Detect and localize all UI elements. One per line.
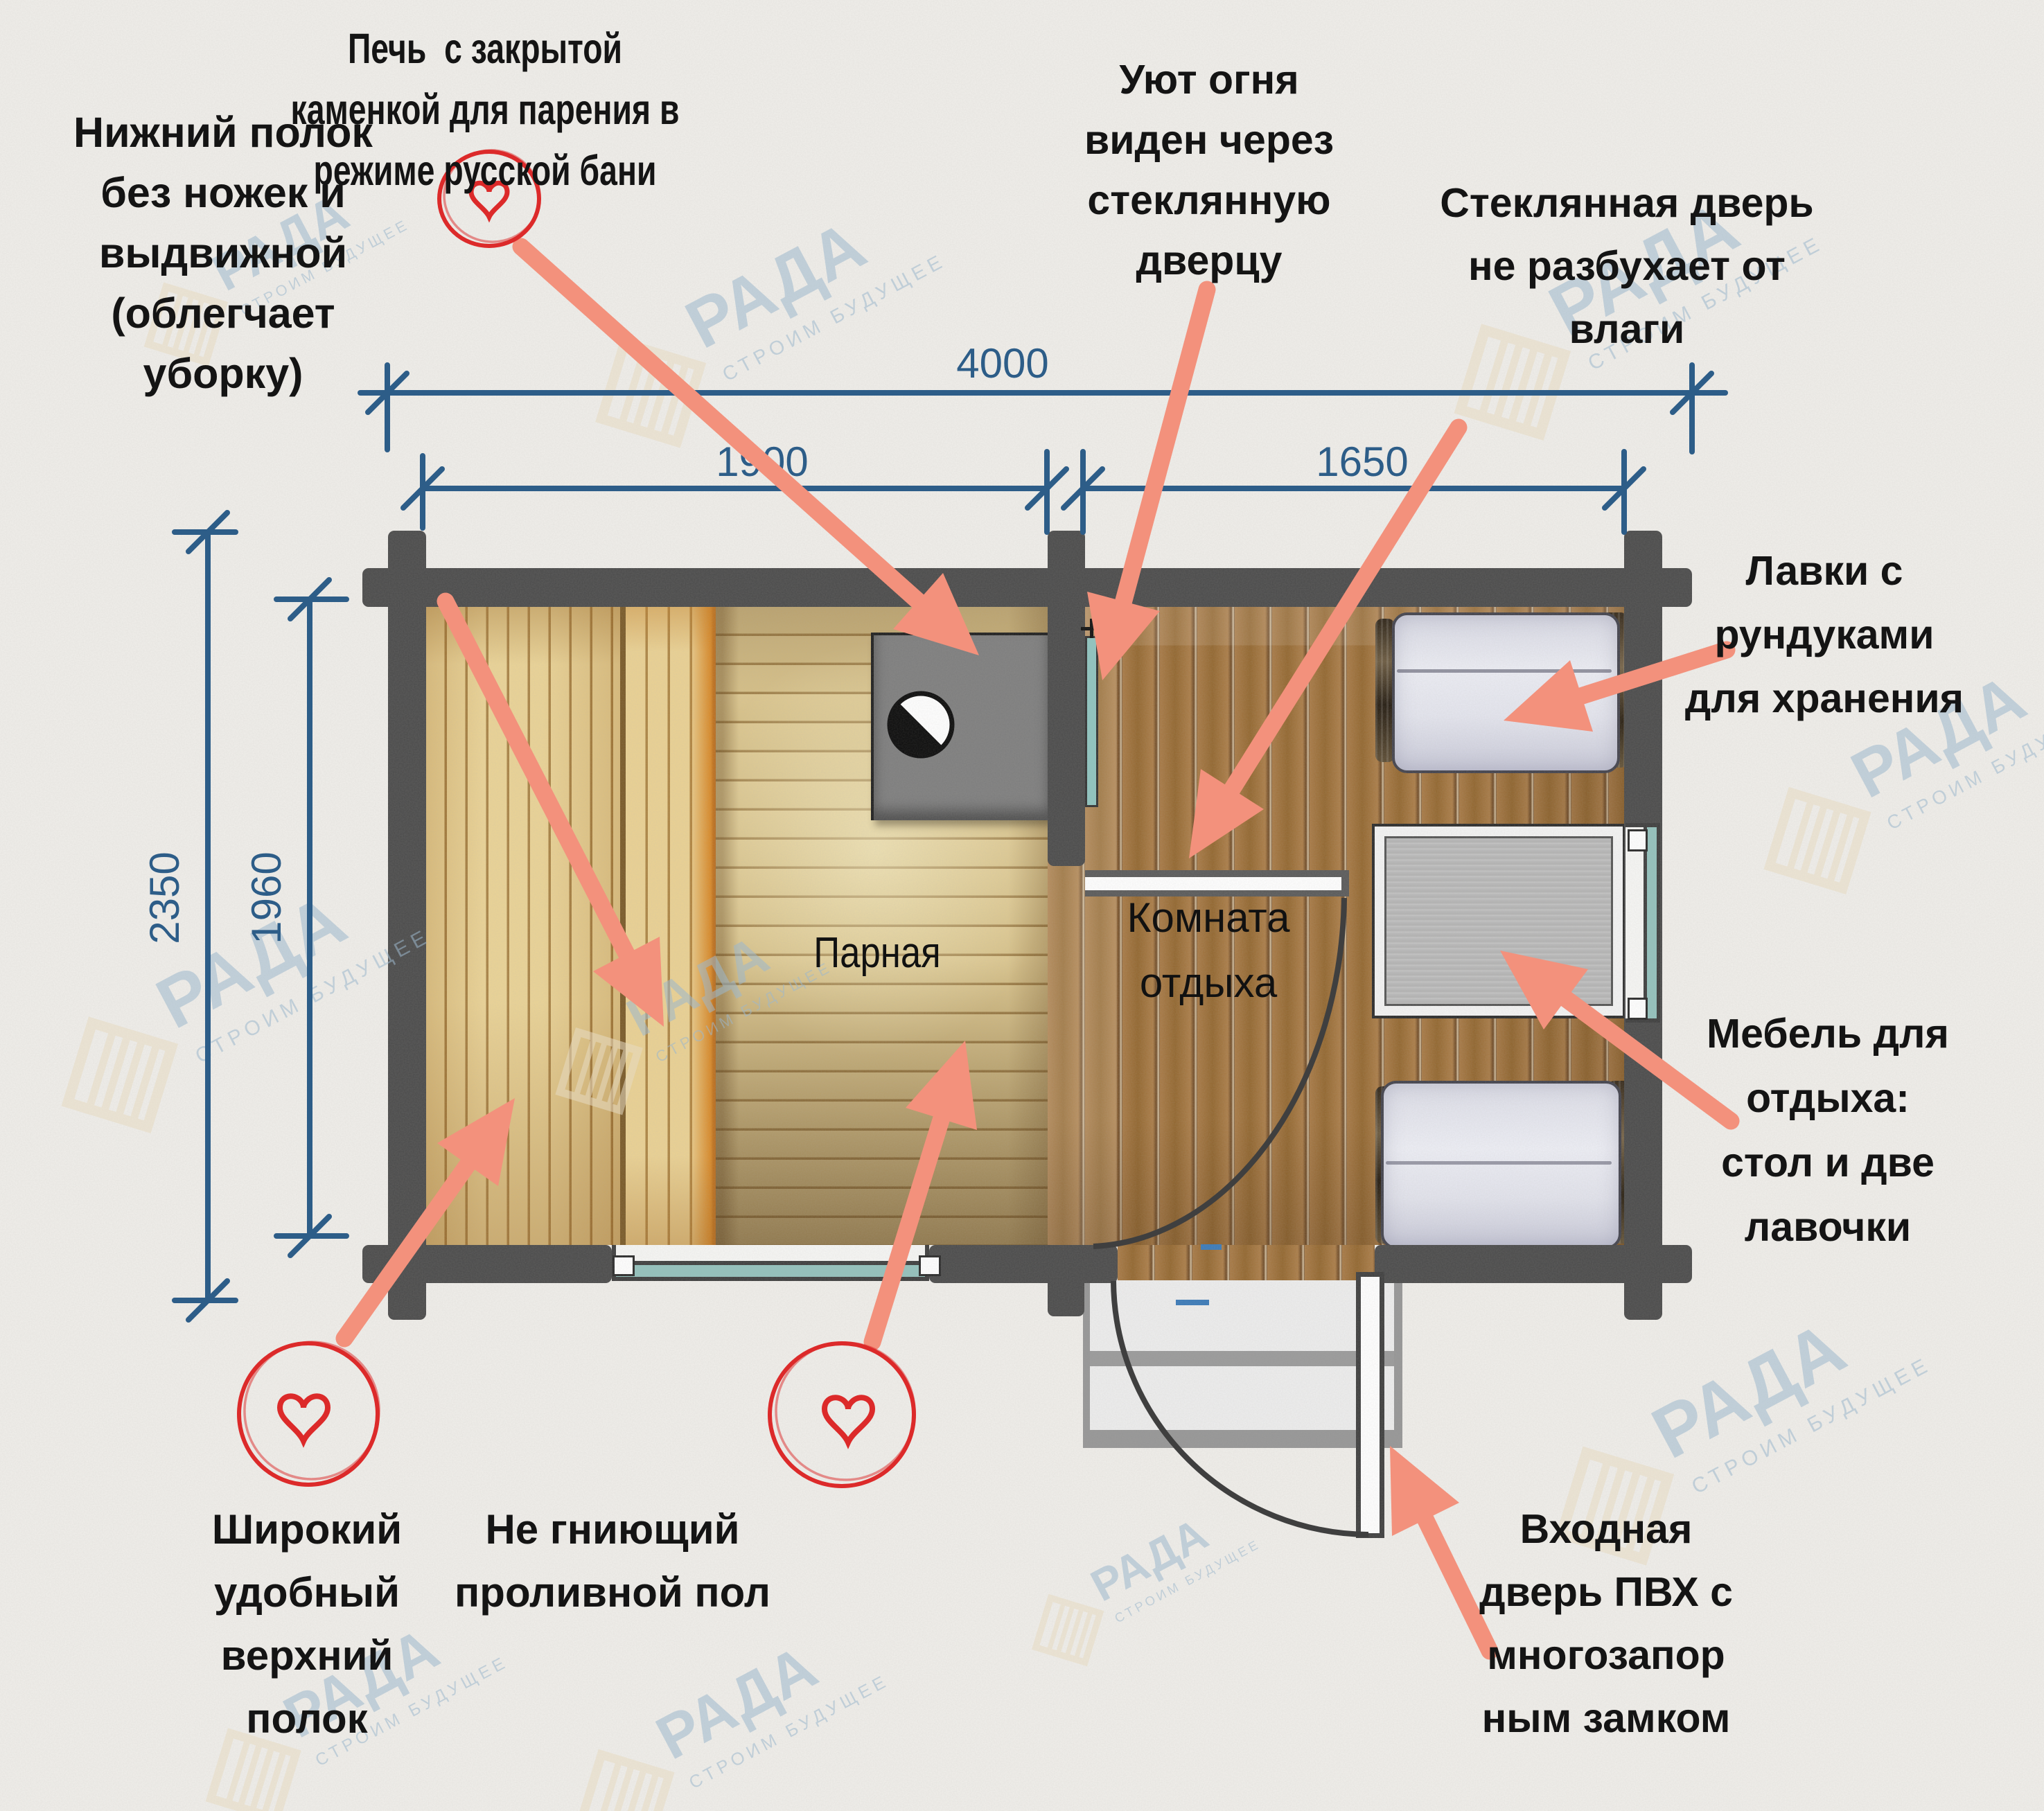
svg-text:1960: 1960 — [243, 851, 290, 944]
svg-text:2350: 2350 — [141, 851, 188, 944]
svg-text:1650: 1650 — [1316, 439, 1408, 485]
svg-text:4000: 4000 — [956, 340, 1048, 387]
